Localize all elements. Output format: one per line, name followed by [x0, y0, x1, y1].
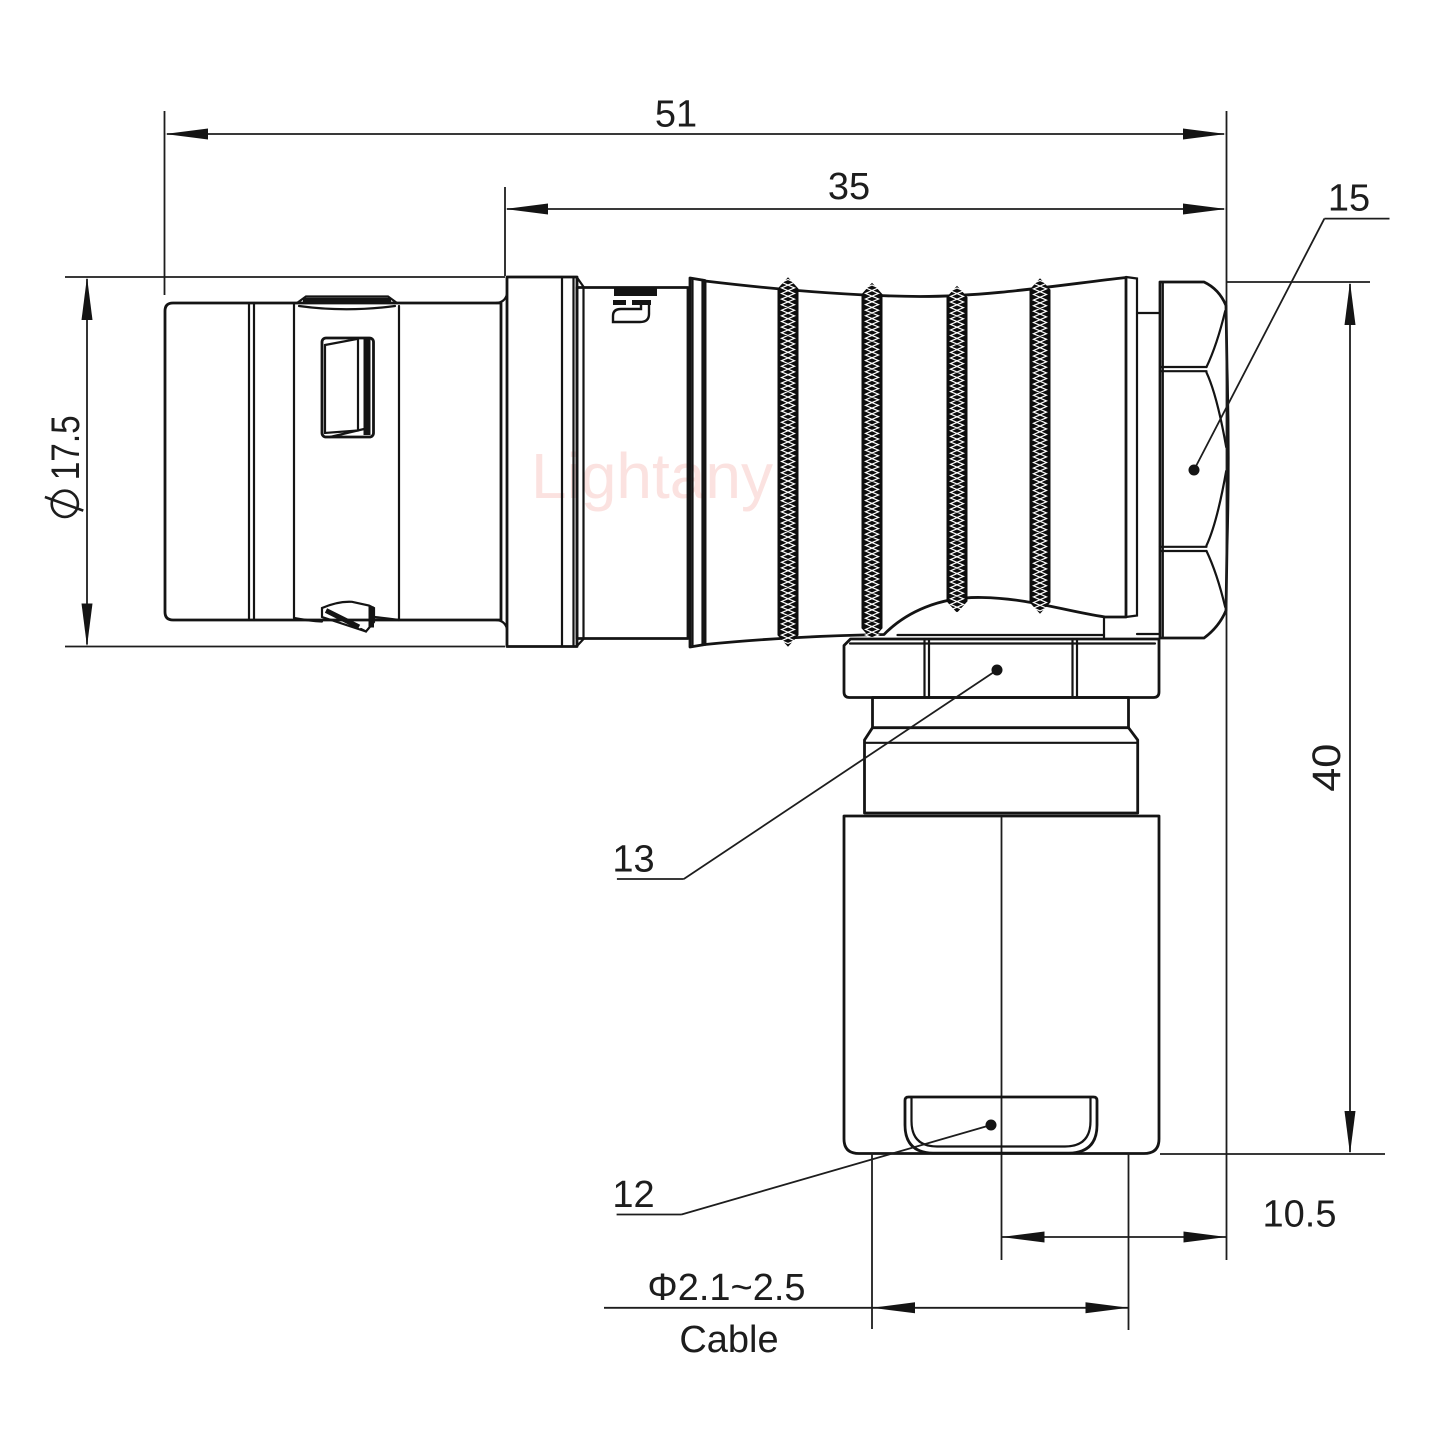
svg-text:Φ2.1~2.5: Φ2.1~2.5 [647, 1267, 805, 1309]
svg-text:Lightany: Lightany [531, 440, 773, 512]
svg-text:15: 15 [1328, 178, 1370, 220]
svg-text:13: 13 [612, 839, 654, 881]
svg-text:10.5: 10.5 [1263, 1194, 1337, 1236]
svg-text:35: 35 [828, 166, 870, 208]
svg-text:12: 12 [612, 1174, 654, 1216]
svg-text:Cable: Cable [679, 1319, 778, 1361]
svg-text:40: 40 [1305, 744, 1349, 792]
svg-text:51: 51 [655, 94, 697, 136]
svg-text:17.5: 17.5 [44, 415, 88, 480]
